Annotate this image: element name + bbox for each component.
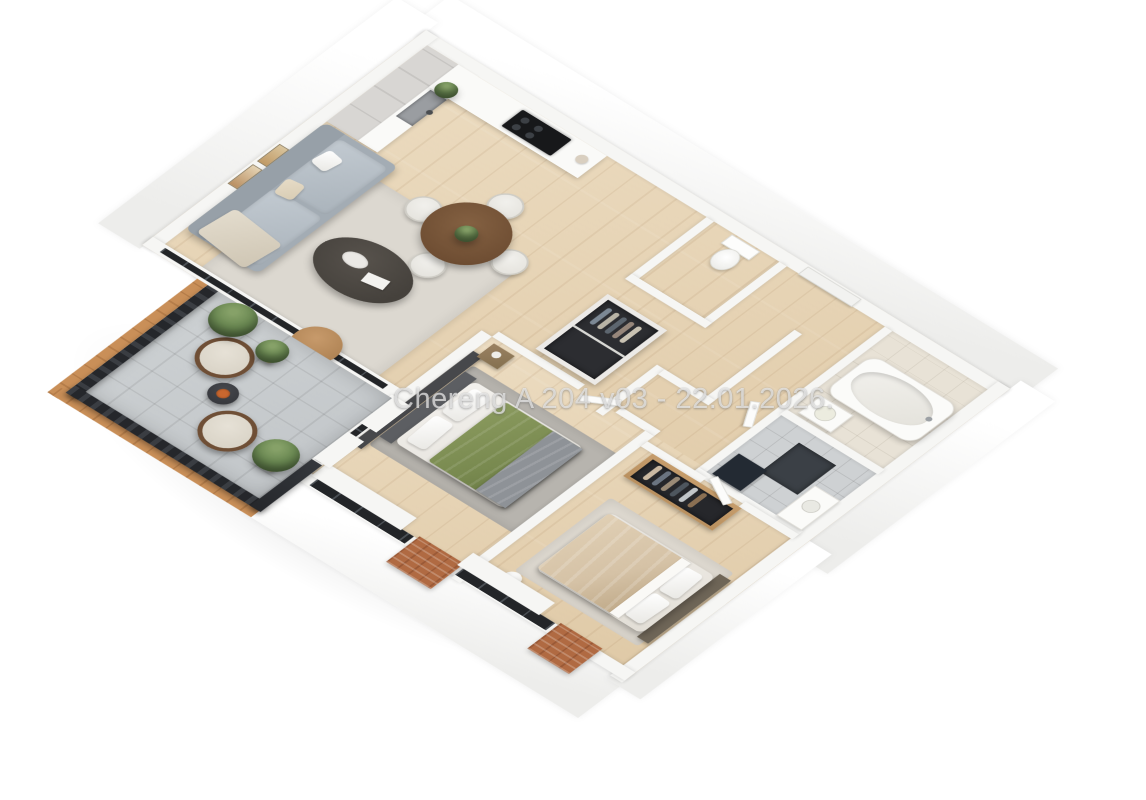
floorplan-render-canvas: Chereng A 204 v03 - 22.01.2026. bbox=[0, 0, 1146, 800]
watermark-text: Chereng A 204 v03 - 22.01.2026. bbox=[393, 383, 834, 416]
